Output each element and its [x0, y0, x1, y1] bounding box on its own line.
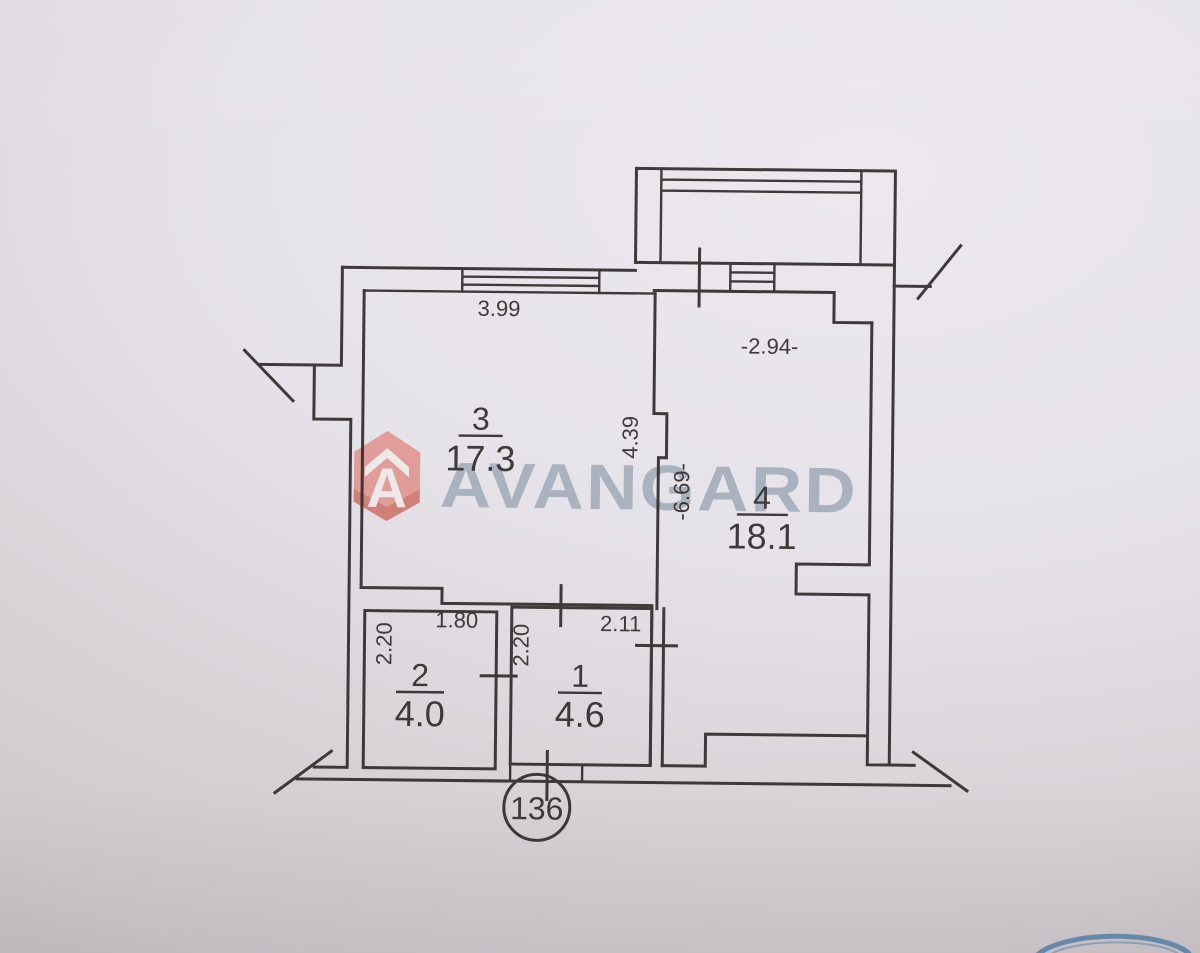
shield-letter: A: [366, 456, 407, 520]
dim-room1-width: 2.11: [600, 611, 641, 636]
room4-area: 18.1: [726, 515, 797, 557]
break-mark-top-right: [918, 245, 961, 298]
floor-plan-drawing: A AVANGARD: [0, 0, 1200, 953]
dim-room2-height: 2.20: [371, 622, 396, 665]
window-room3: [462, 269, 599, 293]
dim-room2-width: 1.80: [435, 607, 478, 632]
room2-number: 2: [411, 657, 429, 693]
room4-number: 4: [753, 480, 771, 516]
wall-left-lower: [310, 365, 351, 767]
avangard-watermark: A AVANGARD: [353, 431, 858, 528]
room3-number: 3: [472, 401, 490, 437]
floor-plan-photo: A AVANGARD: [0, 0, 1200, 953]
wall-room4-right: [794, 322, 919, 765]
dim-room3-height: 4.39: [617, 416, 642, 459]
balcony-floor-wall: [635, 262, 894, 265]
balcony-outline: [635, 168, 895, 286]
window-room4: [730, 263, 774, 291]
dim-room3-top-width: 3.99: [477, 296, 520, 321]
wall-top-inner: [364, 291, 654, 294]
break-mark-bottom-left: [275, 751, 331, 794]
room2-area: 4.0: [395, 693, 445, 735]
room3-area: 17.3: [445, 437, 516, 479]
wall-bottom-outer: [297, 779, 950, 786]
break-mark-top-left: [244, 350, 294, 401]
room1-number: 1: [571, 658, 589, 694]
tick-balcony-window: [699, 249, 700, 306]
wall-top-outer: [342, 267, 635, 270]
wall-right-outer: [889, 286, 894, 765]
apartment-number: 136: [510, 790, 564, 827]
wall-room4-bottom: [662, 734, 867, 768]
room1-area: 4.6: [555, 694, 605, 736]
dim-room1-height: 2.20: [508, 624, 533, 667]
balcony-glazing: [660, 169, 861, 265]
dim-room4-top-width: -2.94-: [741, 333, 799, 359]
labels: 3 17.3 4 18.1 2 4.0 1 4.6 3.99 -2.94- 1.…: [370, 295, 800, 829]
stamp-edge: [1036, 936, 1190, 953]
dim-room4-height: -6.69-: [669, 463, 695, 521]
wall-left-upper: [259, 266, 342, 365]
wall-room4-top: [654, 291, 872, 323]
